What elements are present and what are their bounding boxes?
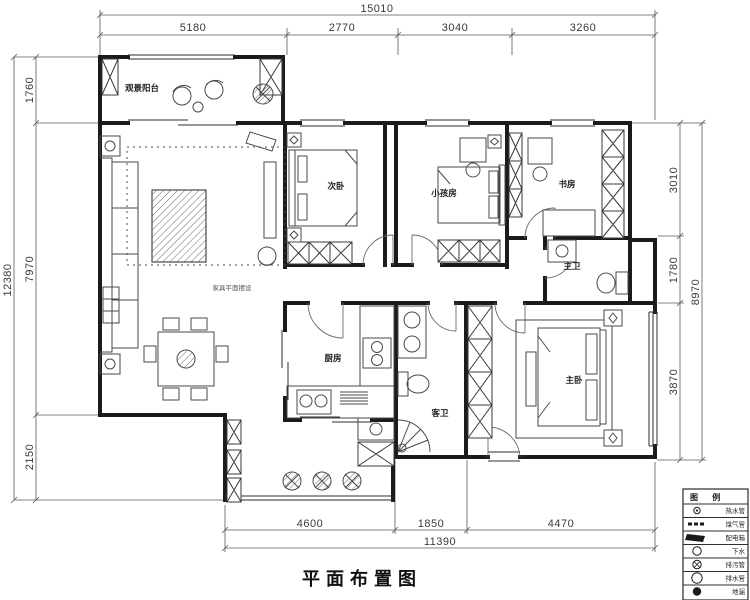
room-label-kitchen: 厨房 [324,353,341,363]
dining-set [144,318,228,400]
drawing-title: 平面布置图 [302,568,422,589]
floor-drain-icon [693,587,701,595]
sofa [100,136,138,374]
legend-label-3: 下水 [732,547,746,556]
walls [100,55,657,500]
dim-left-seg2: 7970 [24,256,36,282]
floor-plan-canvas: 15010 5180 2770 3040 3260 12380 1760 797… [0,0,750,600]
room-label-guest-bath: 客卫 [430,408,449,418]
wall-lines [100,57,655,500]
furniture-note: 家具平面摆设 [213,283,253,292]
dim-bottom-seg1: 4600 [297,518,323,530]
legend-header: 图 例 [690,492,726,502]
dim-top-total: 15010 [360,3,393,15]
dim-right-seg2: 1780 [668,257,680,283]
side-cabinet [103,287,119,323]
tv-cabinet [246,132,276,265]
legend-label-0: 热水管 [726,506,746,515]
dim-top-seg2: 2770 [329,22,355,34]
room-label-study: 书房 [558,179,575,189]
dim-bottom-seg3: 4470 [548,518,574,530]
master-bath-fixtures [548,240,628,294]
dim-top-seg4: 3260 [570,22,596,34]
guest-bath-fixtures [398,306,430,452]
room-label-master-bath: 主卫 [563,261,581,271]
room-label-balcony: 观景阳台 [125,83,160,93]
dim-bottom-seg2: 1850 [418,518,444,530]
balcony-furniture [173,80,273,112]
floor-plan-page: 15010 5180 2770 3040 3260 12380 1760 797… [0,0,750,600]
room-label-bedroom2: 次卧 [327,181,345,191]
dim-left-seg1: 1760 [24,77,36,103]
dim-right-seg3: 3870 [668,369,680,395]
coffee-table [152,190,206,262]
room-label-master: 主卧 [565,375,583,385]
legend-label-6: 地漏 [732,587,746,596]
room-label-kids: 小孩房 [430,188,457,198]
dim-top-seg1: 5180 [180,22,206,34]
dim-top-seg3: 3040 [442,22,468,34]
bed-bedroom2 [287,133,357,242]
legend: 图 例 热水管 煤气管 配电箱 下水 排污管 排水管 地漏 [683,489,748,600]
dim-bottom-total: 11390 [424,536,456,548]
legend-label-1: 煤气管 [726,520,746,529]
furniture [100,80,628,490]
table-plant [177,350,195,368]
dim-right-total: 8970 [690,279,702,305]
legend-label-2: 配电箱 [726,533,746,542]
dim-left-total: 12380 [2,263,14,296]
legend-label-5: 排水管 [726,574,746,583]
dim-right-seg1: 3010 [668,167,680,193]
bed-kids [438,135,505,225]
legend-label-4: 排污管 [726,560,746,569]
dim-left-seg3: 2150 [24,444,36,470]
